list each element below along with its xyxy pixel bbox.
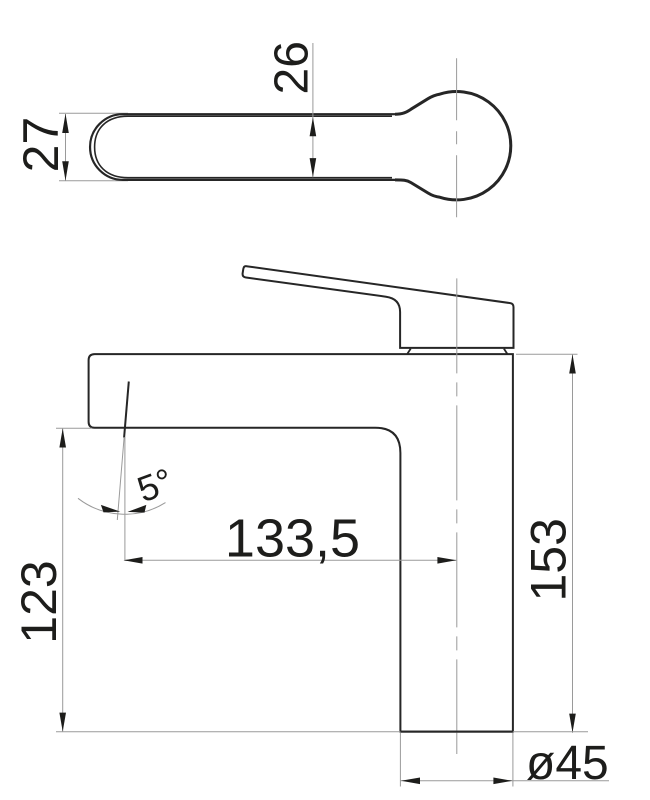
- svg-text:133,5: 133,5: [225, 509, 360, 569]
- svg-text:123: 123: [11, 560, 67, 643]
- svg-text:ø45: ø45: [526, 737, 609, 790]
- svg-text:26: 26: [265, 41, 318, 94]
- svg-text:27: 27: [13, 117, 69, 173]
- svg-text:153: 153: [521, 518, 577, 601]
